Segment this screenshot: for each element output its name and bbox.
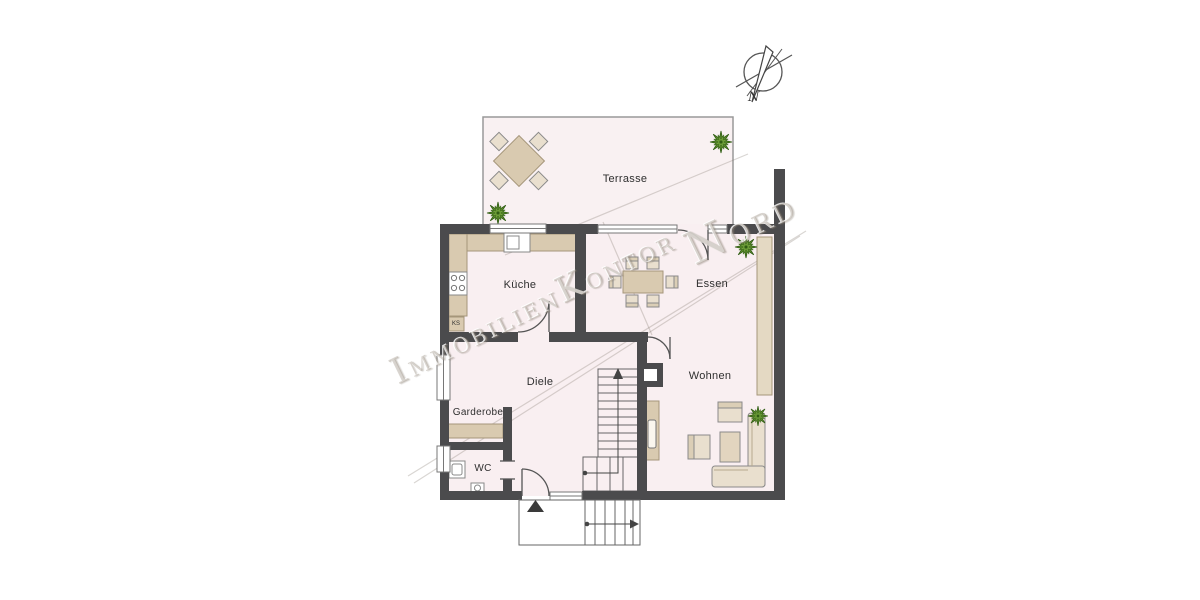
room-label-wc: WC xyxy=(474,463,491,474)
window xyxy=(490,224,546,233)
kitchen-sink xyxy=(504,233,530,252)
room-label-garderobe: Garderobe xyxy=(453,407,504,418)
steps-direction-arrow xyxy=(585,520,639,529)
floorplan-drawing xyxy=(0,0,1200,600)
chimney-flue xyxy=(644,369,657,381)
kitchen-stove xyxy=(449,272,467,295)
room-label-wohnen: Wohnen xyxy=(689,370,732,382)
armchair xyxy=(688,435,710,459)
plant-icon xyxy=(710,131,732,153)
terrace-area xyxy=(483,117,733,225)
room-label-essen: Essen xyxy=(696,278,728,290)
compass-north-label: N xyxy=(748,90,759,105)
sideboard-right-wall xyxy=(757,237,772,395)
wardrobe xyxy=(448,424,503,438)
terrace-table xyxy=(490,132,548,189)
room-label-terrasse: Terrasse xyxy=(603,173,648,185)
entrance-arrow-icon xyxy=(527,500,544,512)
floorplan-page: Terrasse Küche Essen Diele Wohnen Garder… xyxy=(0,0,1200,600)
room-label-diele: Diele xyxy=(527,376,554,388)
tv-lowboard xyxy=(645,401,659,460)
armchair xyxy=(718,402,742,422)
window xyxy=(437,446,450,472)
wc-sink xyxy=(449,461,465,478)
compass-rose-icon xyxy=(736,46,792,102)
plant-icon xyxy=(487,202,509,224)
coffee-table xyxy=(720,432,740,462)
plant-icon xyxy=(748,406,768,426)
window xyxy=(550,492,582,500)
